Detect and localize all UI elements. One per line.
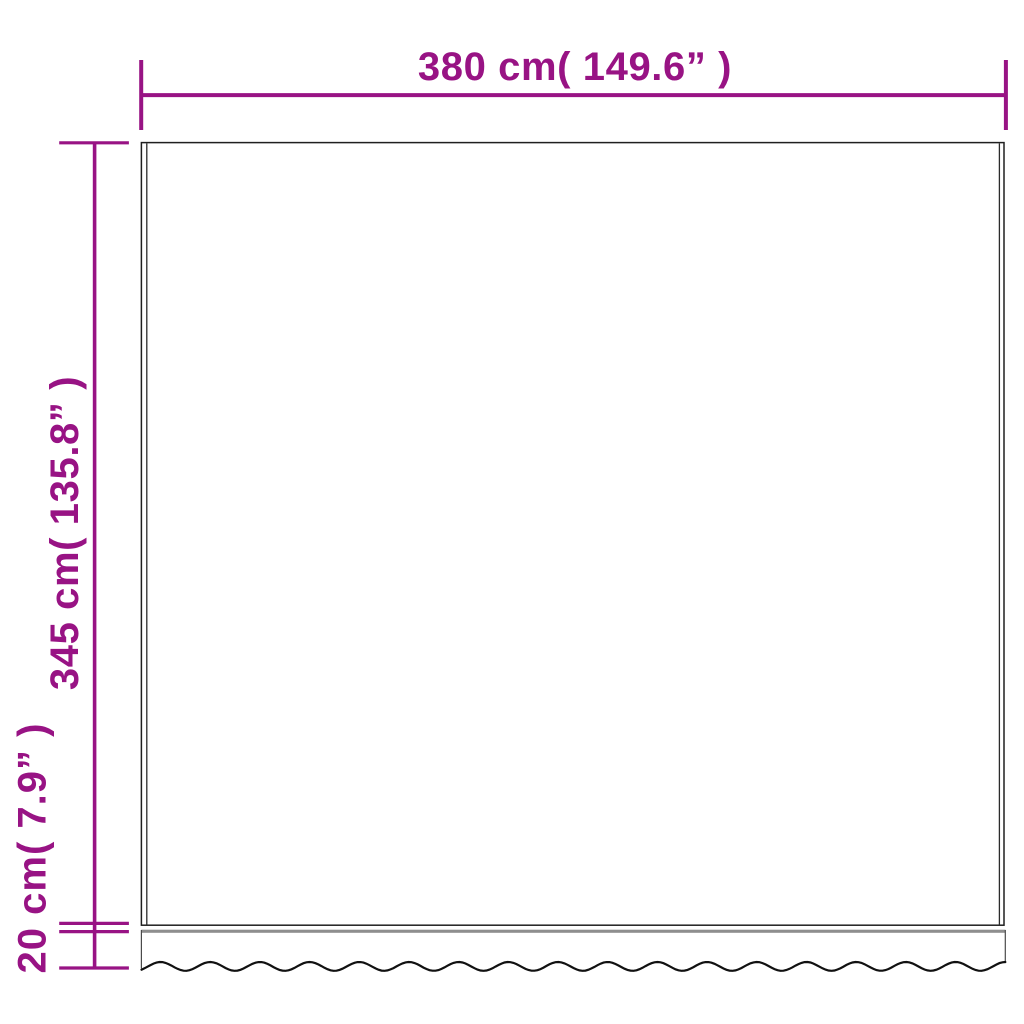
svg-text:20 cm( 7.9” ): 20 cm( 7.9” ) — [11, 723, 55, 974]
svg-text:380 cm( 149.6” ): 380 cm( 149.6” ) — [418, 45, 732, 89]
svg-text:345 cm( 135.8” ): 345 cm( 135.8” ) — [43, 376, 87, 690]
